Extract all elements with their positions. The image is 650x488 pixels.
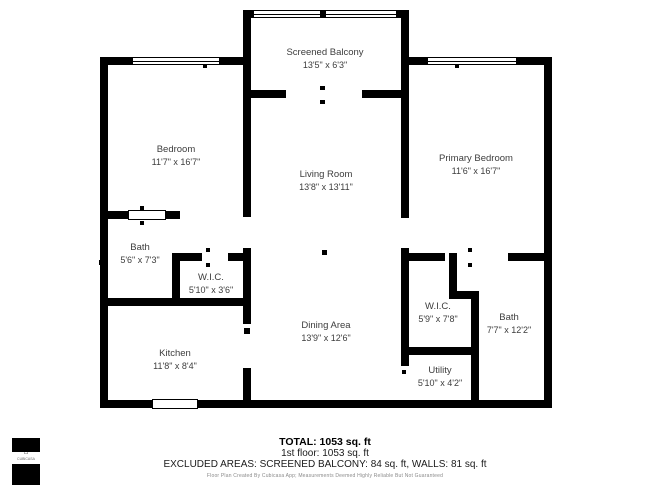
room-name: Living Room [299, 168, 353, 181]
wall-segment [100, 211, 128, 219]
wall-segment [243, 10, 251, 98]
room-dimensions: 5'10" x 3'6" [189, 284, 233, 296]
room-dimensions: 13'8" x 13'11" [299, 181, 353, 193]
wall-segment [401, 98, 409, 218]
room-label-living-room: Living Room 13'8" x 13'11" [299, 168, 353, 193]
room-name: Primary Bedroom [439, 152, 513, 165]
disclaimer-text: Floor Plan Created By Cubicasa App; Meas… [0, 471, 650, 481]
cubicasa-logo: ⌂ CUBICASA [12, 438, 40, 485]
dimension-tick [468, 263, 472, 267]
window-mullion [254, 14, 320, 15]
room-label-kitchen: Kitchen 11'8" x 8'4" [153, 347, 197, 372]
wall-segment [243, 98, 251, 217]
wall-segment [100, 57, 108, 408]
total-area-text: TOTAL: 1053 sq. ft [0, 436, 650, 448]
window [325, 10, 397, 18]
dimension-tick [245, 160, 250, 165]
room-dimensions: 5'9" x 7'8" [418, 313, 457, 325]
logo-band: ⌂ CUBICASA [12, 452, 40, 464]
wall-segment [401, 10, 409, 98]
wall-segment [228, 253, 251, 261]
wall-segment [100, 298, 251, 306]
dimension-tick [455, 65, 459, 68]
dimension-tick [140, 221, 144, 225]
door-threshold [128, 210, 166, 220]
dimension-tick [140, 206, 144, 210]
room-dimensions: 11'7" x 16'7" [152, 156, 201, 168]
wall-segment [166, 211, 180, 219]
summary-footer: TOTAL: 1053 sq. ft 1st floor: 1053 sq. f… [0, 436, 650, 481]
room-label-wic-left: W.I.C. 5'10" x 3'6" [189, 271, 233, 296]
dimension-tick [203, 65, 207, 68]
room-label-screened-balcony: Screened Balcony 13'5" x 6'3" [286, 46, 363, 71]
dimension-tick [322, 250, 327, 255]
floor-plan: Screened Balcony 13'5" x 6'3" Bedroom 11… [0, 0, 650, 488]
window-mullion [326, 14, 396, 15]
wall-segment [362, 90, 409, 98]
room-dimensions: 11'8" x 8'4" [153, 360, 197, 372]
door-threshold [152, 399, 198, 409]
room-label-primary-bedroom: Primary Bedroom 11'6" x 16'7" [439, 152, 513, 177]
room-name: Dining Area [301, 319, 350, 332]
window [132, 57, 220, 65]
room-dimensions: 7'7" x 12'2" [487, 324, 531, 336]
window-mullion [133, 61, 219, 62]
room-label-bath-left: Bath 5'6" x 7'3" [120, 241, 159, 266]
dimension-tick [206, 248, 210, 252]
room-label-bath-right: Bath 7'7" x 12'2" [487, 311, 531, 336]
window-mullion [428, 61, 516, 62]
room-dimensions: 11'6" x 16'7" [439, 165, 513, 177]
wall-segment [401, 347, 479, 355]
room-label-dining-area: Dining Area 13'9" x 12'6" [301, 319, 350, 344]
dimension-tick [320, 86, 325, 90]
excluded-areas-text: EXCLUDED AREAS: SCREENED BALCONY: 84 sq.… [0, 459, 650, 470]
dimension-tick [545, 232, 550, 237]
room-name: Bedroom [152, 143, 201, 156]
window [253, 10, 321, 18]
logo-block-bottom [12, 464, 40, 485]
dimension-tick [401, 162, 406, 167]
room-dimensions: 5'6" x 7'3" [120, 254, 159, 266]
wall-segment [401, 253, 445, 261]
floor-area-text: 1st floor: 1053 sq. ft [0, 448, 650, 459]
wall-segment [243, 90, 286, 98]
wall-segment [407, 57, 427, 65]
room-dimensions: 13'5" x 6'3" [286, 59, 363, 71]
room-name: Kitchen [153, 347, 197, 360]
wall-segment [100, 400, 155, 408]
logo-brand-text: CUBICASA [17, 457, 35, 462]
house-icon: ⌂ [24, 449, 28, 456]
room-name: Utility [418, 364, 462, 377]
wall-segment [172, 253, 202, 261]
room-label-wic-right: W.I.C. 5'9" x 7'8" [418, 300, 457, 325]
wall-segment [243, 368, 251, 400]
dimension-tick [320, 100, 325, 104]
wall-segment [508, 253, 552, 261]
room-label-utility: Utility 5'10" x 4'2" [418, 364, 462, 389]
room-name: W.I.C. [189, 271, 233, 284]
room-dimensions: 5'10" x 4'2" [418, 377, 462, 389]
dimension-tick [468, 248, 472, 252]
room-name: Bath [487, 311, 531, 324]
room-name: Screened Balcony [286, 46, 363, 59]
room-name: W.I.C. [418, 300, 457, 313]
dimension-tick [244, 328, 250, 334]
room-name: Bath [120, 241, 159, 254]
wall-segment [196, 400, 552, 408]
dimension-tick [206, 263, 210, 267]
room-label-bedroom: Bedroom 11'7" x 16'7" [152, 143, 201, 168]
dimension-tick [99, 260, 104, 265]
dimension-tick [402, 370, 406, 374]
room-dimensions: 13'9" x 12'6" [301, 332, 350, 344]
window [427, 57, 517, 65]
